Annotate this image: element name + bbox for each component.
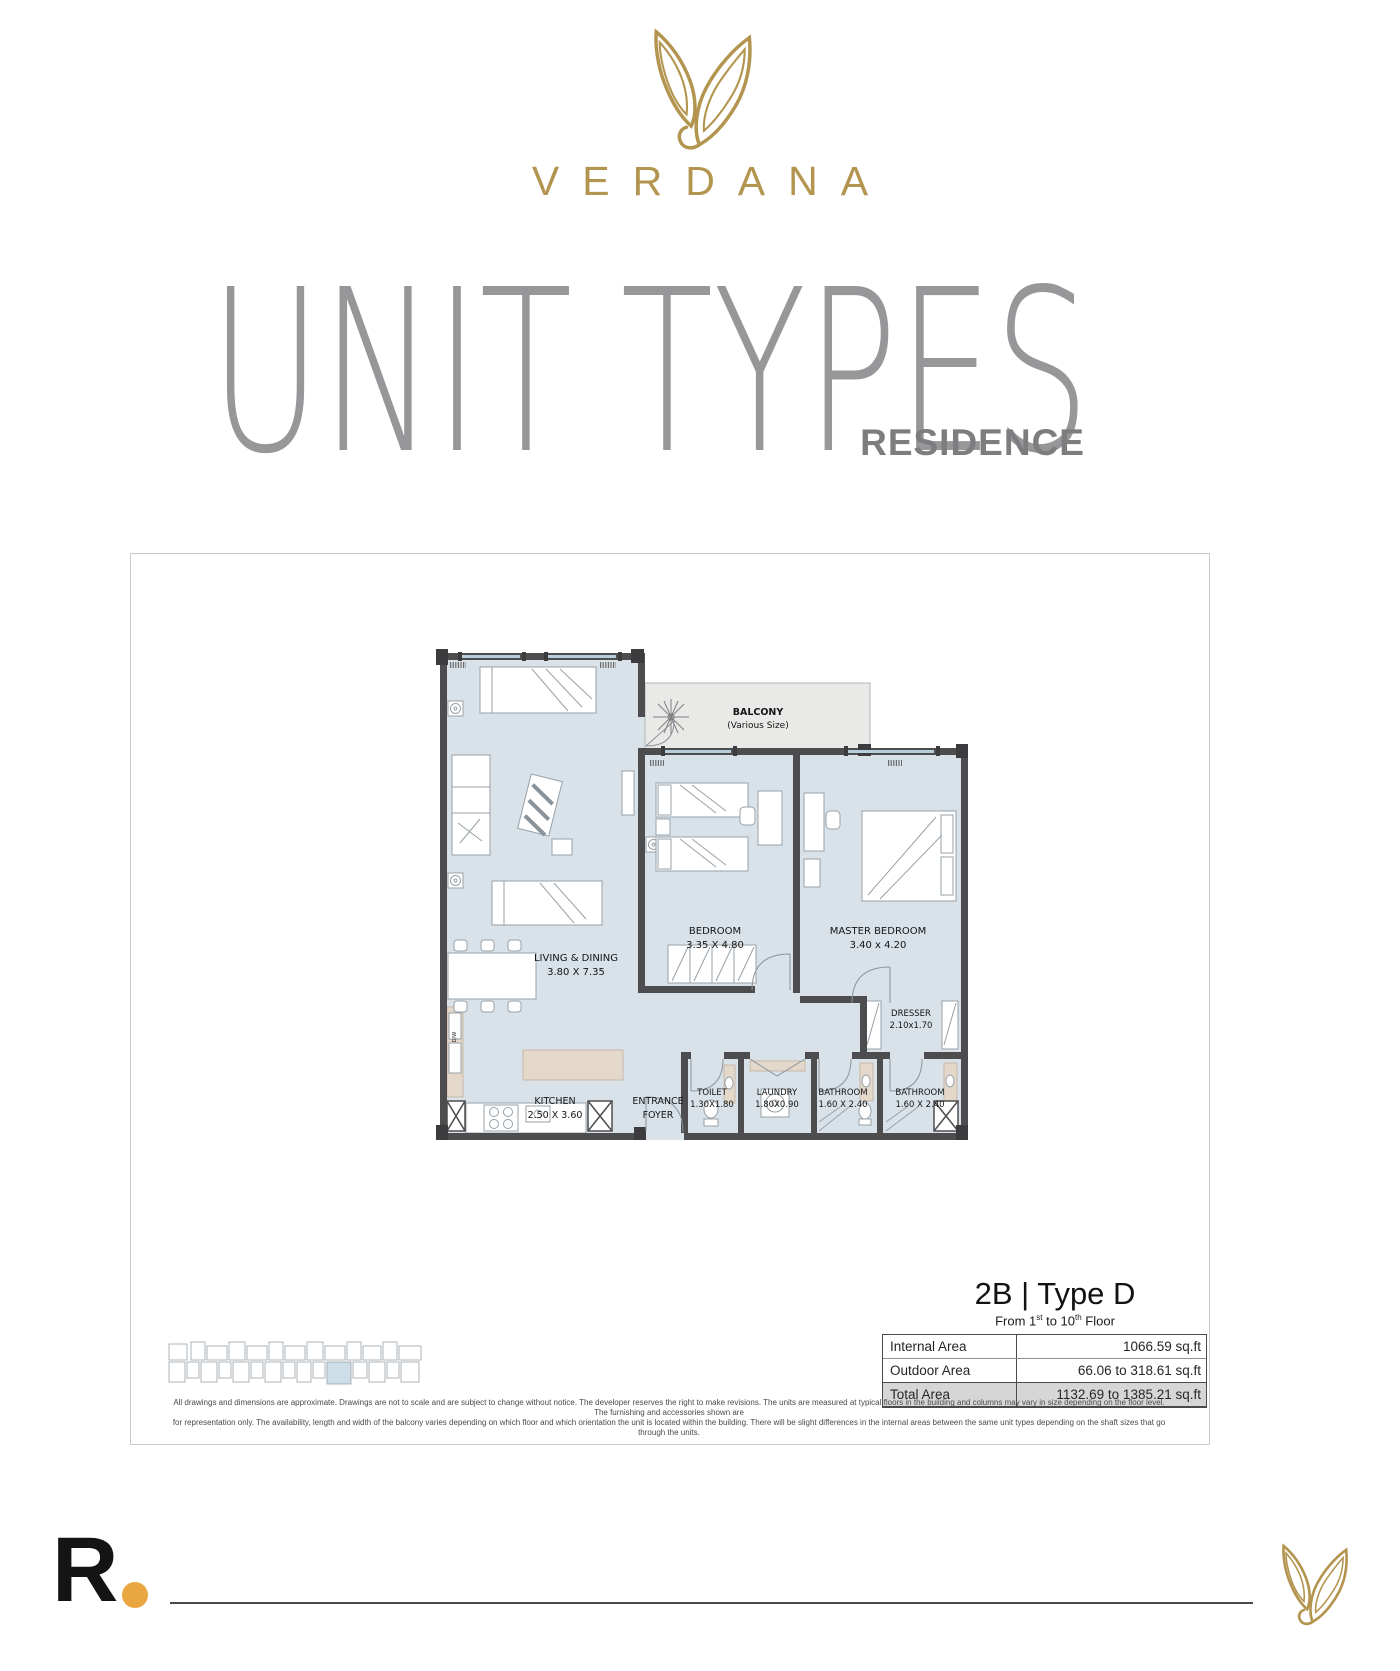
room-label-foyer-2: FOYER xyxy=(643,1110,674,1121)
footer-divider xyxy=(170,1602,1253,1604)
disclaimer-line-2: for representation only. The availabilit… xyxy=(169,1418,1169,1438)
table-row: Internal Area 1066.59 sq.ft xyxy=(883,1335,1206,1358)
floor-plan: BALCONY (Various Size) LIVING & DINING 3… xyxy=(428,645,973,1147)
disclaimer: All drawings and dimensions are approxim… xyxy=(169,1398,1169,1438)
floor-note-part: to 10 xyxy=(1042,1313,1075,1328)
room-dims-bedroom: 3.35 X 4.80 xyxy=(686,940,744,951)
area-row-label: Outdoor Area xyxy=(883,1359,1017,1382)
brochure-page: VERDANA UNIT TYPES RESIDENCE xyxy=(0,0,1400,1671)
room-dims-bathroom1: 1.60 X 2.40 xyxy=(818,1100,867,1110)
floor-range-note: From 1st to 10th Floor xyxy=(905,1313,1205,1328)
table-row: Outdoor Area 66.06 to 318.61 sq.ft xyxy=(883,1358,1206,1382)
developer-r-logo: R xyxy=(52,1530,148,1610)
room-note-balcony: (Various Size) xyxy=(727,721,788,731)
floor-note-part: Floor xyxy=(1082,1313,1115,1328)
verdana-leaf-logo xyxy=(622,26,772,154)
unit-type-title: 2B | Type D xyxy=(905,1276,1205,1312)
area-row-label: Internal Area xyxy=(883,1335,1017,1358)
room-dims-laundry: 1.80X0.90 xyxy=(755,1100,799,1110)
room-label-bathroom1: BATHROOM xyxy=(818,1088,867,1098)
brand-wordmark: VERDANA xyxy=(0,158,1400,205)
room-label-bathroom2: BATHROOM xyxy=(895,1088,944,1098)
disclaimer-line-1: All drawings and dimensions are approxim… xyxy=(169,1398,1169,1418)
room-label-bedroom: BEDROOM xyxy=(689,926,741,937)
room-dims-kitchen: 2.50 X 3.60 xyxy=(528,1110,583,1121)
room-label-living: LIVING & DINING xyxy=(534,953,618,964)
sunburst-plant-icon xyxy=(653,699,689,735)
developer-logo-dot-icon xyxy=(122,1582,148,1608)
dishwasher-label: D/W xyxy=(452,1032,458,1043)
room-label-foyer-1: ENTRANCE xyxy=(632,1096,683,1107)
area-table: Internal Area 1066.59 sq.ft Outdoor Area… xyxy=(882,1334,1207,1408)
page-subtitle: RESIDENCE xyxy=(785,422,1085,464)
room-label-master: MASTER BEDROOM xyxy=(830,926,927,937)
room-label-toilet: TOILET xyxy=(696,1088,727,1098)
room-label-kitchen: KITCHEN xyxy=(534,1096,575,1107)
building-key-plan xyxy=(165,1334,427,1392)
room-label-balcony: BALCONY xyxy=(733,707,784,718)
area-row-value: 66.06 to 318.61 sq.ft xyxy=(1017,1359,1206,1382)
room-label-dresser: DRESSER xyxy=(891,1009,931,1019)
highlighted-unit xyxy=(327,1362,351,1384)
floor-note-sup: th xyxy=(1075,1313,1082,1322)
room-dims-dresser: 2.10x1.70 xyxy=(890,1021,933,1031)
room-dims-toilet: 1.30X1.80 xyxy=(690,1100,734,1110)
room-dims-master: 3.40 x 4.20 xyxy=(850,940,907,951)
developer-logo-letter: R xyxy=(52,1530,118,1610)
room-dims-bathroom2: 1.60 X 2.40 xyxy=(895,1100,944,1110)
footer-leaf-logo xyxy=(1262,1542,1360,1628)
room-label-laundry: LAUNDRY xyxy=(757,1088,798,1098)
room-dims-living: 3.80 X 7.35 xyxy=(547,967,605,978)
floor-note-part: From 1 xyxy=(995,1313,1036,1328)
area-row-value: 1066.59 sq.ft xyxy=(1017,1335,1206,1358)
